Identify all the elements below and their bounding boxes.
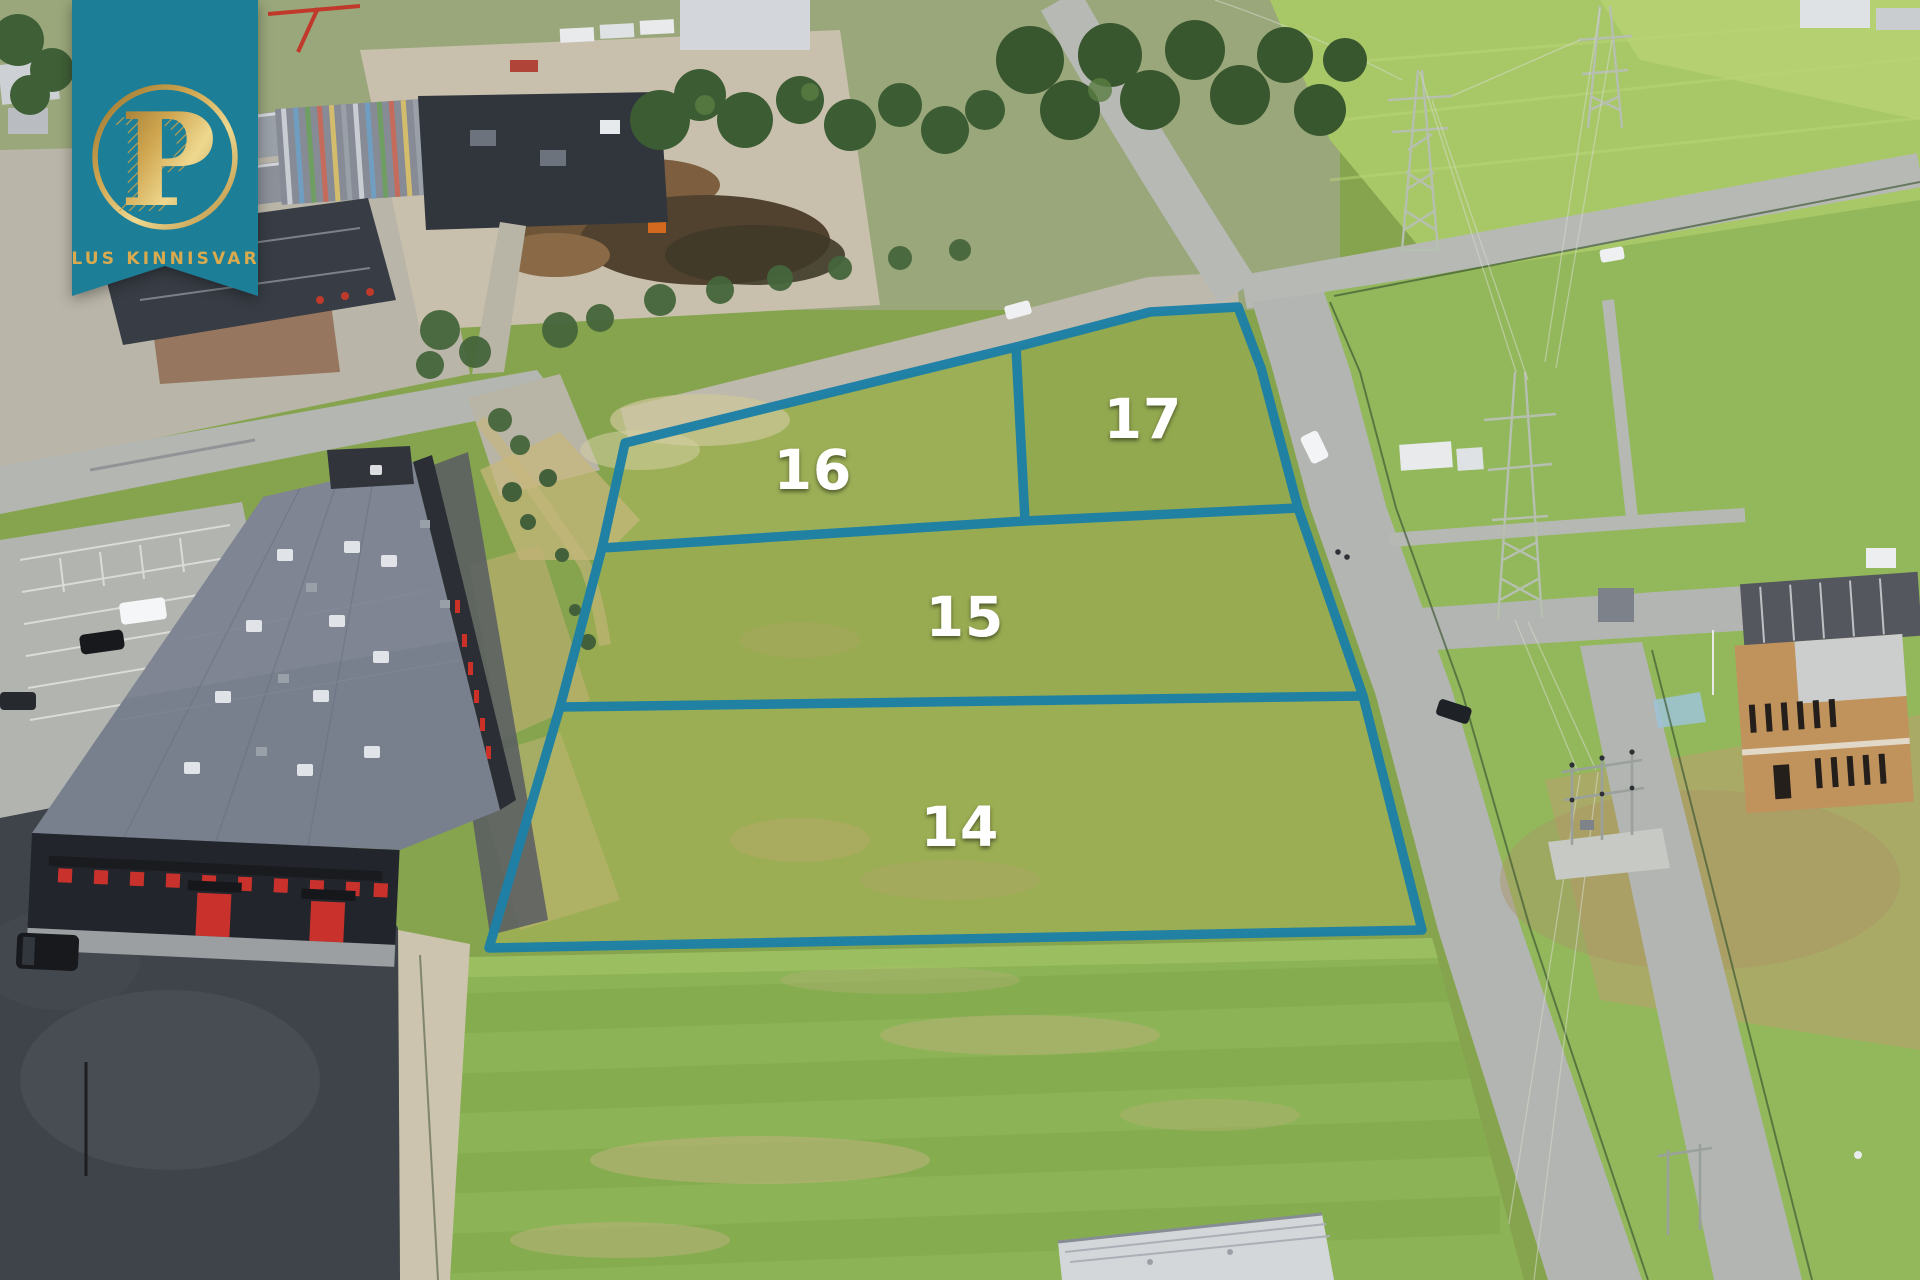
excavator (648, 222, 666, 233)
plot-label-15: 15 (926, 585, 1005, 649)
equipment-hut (1598, 588, 1634, 622)
brand-ribbon: P P PLUS KINNISVARA (72, 0, 258, 300)
logo-monogram: P (120, 86, 216, 236)
pedestrian (1335, 549, 1341, 555)
striped-facade-building (275, 99, 429, 205)
plot-label-16: 16 (774, 438, 853, 502)
pedestrian (1344, 554, 1350, 560)
red-door (309, 901, 345, 943)
truck (1800, 0, 1870, 28)
container-white (1399, 441, 1453, 471)
brand-name: PLUS KINNISVARA (72, 249, 258, 269)
plot-label-17: 17 (1104, 387, 1183, 451)
plus-kinnisvara-watermark: P P PLUS KINNISVARA (72, 0, 258, 304)
red-door (195, 893, 231, 938)
aerial-photo: 16 17 15 14 (0, 0, 1920, 1280)
mowed-field (398, 930, 1524, 1280)
office-building-tan (1735, 634, 1914, 813)
aerial-photo-listing: 16 17 15 14 P P PLUS KINNISVARA (0, 0, 1920, 1280)
plot-label-14: 14 (921, 795, 1000, 859)
